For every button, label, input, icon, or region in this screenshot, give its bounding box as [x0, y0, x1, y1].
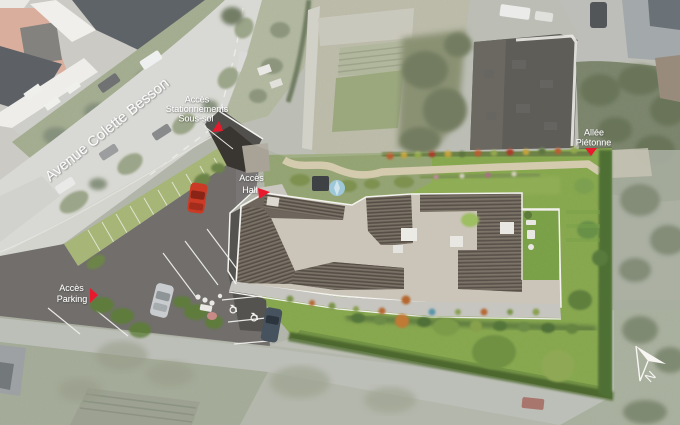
- svg-text:Accès: Accès: [59, 283, 84, 293]
- svg-text:Stationnements: Stationnements: [166, 104, 229, 114]
- svg-text:Parking: Parking: [57, 294, 88, 304]
- svg-text:Accès: Accès: [239, 173, 264, 183]
- svg-text:Allée: Allée: [584, 128, 604, 138]
- svg-text:Piétonne: Piétonne: [576, 138, 612, 148]
- svg-text:Accès: Accès: [185, 94, 210, 104]
- svg-text:Sous-sol: Sous-sol: [178, 114, 213, 124]
- svg-text:Hall: Hall: [242, 185, 258, 195]
